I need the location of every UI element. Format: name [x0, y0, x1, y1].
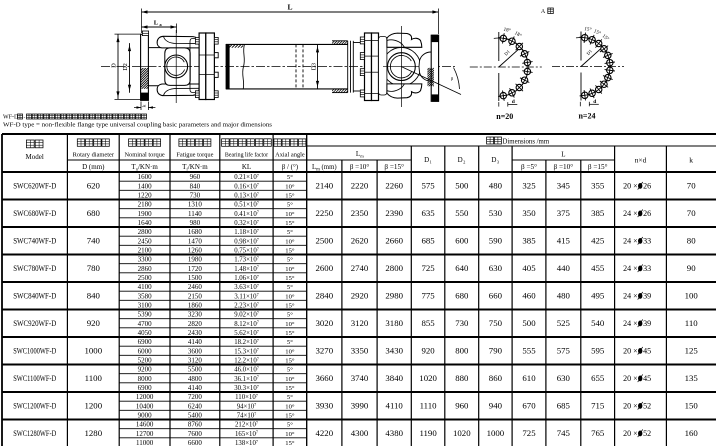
svg-text:575: 575	[421, 181, 435, 191]
svg-text:D: D	[424, 156, 429, 164]
svg-text:SWC1000WF-D: SWC1000WF-D	[13, 347, 56, 356]
svg-text:5°: 5°	[287, 174, 293, 181]
svg-text:6000: 6000	[138, 347, 153, 355]
svg-text:24 ×: 24 ×	[623, 292, 638, 301]
svg-text:5°: 5°	[287, 284, 293, 291]
svg-text:70: 70	[687, 181, 696, 191]
svg-text:SWC780WF-D: SWC780WF-D	[13, 264, 56, 273]
svg-text:425: 425	[591, 236, 605, 246]
svg-text:Tn/KN·m: Tn/KN·m	[131, 163, 158, 172]
svg-text:20 ×: 20 ×	[623, 402, 638, 411]
svg-text:8760: 8760	[188, 421, 203, 429]
svg-text:SWC740WF-D: SWC740WF-D	[13, 237, 56, 246]
svg-text:0.32×107: 0.32×107	[234, 219, 259, 227]
svg-text:n=20: n=20	[496, 112, 513, 121]
svg-text:3740: 3740	[351, 373, 369, 383]
svg-text:12700: 12700	[136, 430, 154, 438]
svg-text:500: 500	[522, 318, 536, 328]
svg-text:15°: 15°	[285, 385, 295, 392]
svg-text:715: 715	[591, 401, 605, 411]
svg-text:3120: 3120	[351, 318, 369, 328]
svg-text:480: 480	[489, 181, 503, 191]
svg-text:730: 730	[455, 318, 469, 328]
svg-text:630: 630	[489, 263, 503, 273]
svg-text:855: 855	[421, 318, 435, 328]
svg-text:4140: 4140	[188, 338, 203, 346]
svg-text:Model: Model	[26, 153, 44, 161]
svg-text:2: 2	[463, 160, 465, 165]
svg-text:725: 725	[421, 263, 435, 273]
svg-text:345: 345	[557, 181, 571, 191]
svg-text:1680: 1680	[188, 228, 203, 236]
svg-text:39: 39	[643, 292, 651, 301]
svg-text:10400: 10400	[136, 402, 154, 410]
svg-text:440: 440	[557, 263, 571, 273]
svg-text:26: 26	[643, 182, 651, 191]
svg-text:20 ×: 20 ×	[623, 347, 638, 356]
svg-text:A: A	[541, 9, 546, 15]
svg-text:15°: 15°	[285, 248, 295, 255]
svg-text:530: 530	[489, 208, 503, 218]
svg-text:Rotary diameter: Rotary diameter	[73, 152, 115, 159]
svg-text:138×107: 138×107	[235, 439, 258, 446]
svg-text:685: 685	[557, 401, 571, 411]
svg-text:WF-D type = non-flexible flang: WF-D type = non-flexible flange type uni…	[3, 122, 273, 129]
svg-text:10°: 10°	[285, 431, 295, 438]
svg-text:5°: 5°	[287, 394, 293, 401]
svg-text:920: 920	[421, 346, 435, 356]
svg-text:5390: 5390	[138, 311, 153, 319]
svg-text:2820: 2820	[188, 320, 203, 328]
svg-text:2150: 2150	[188, 292, 203, 300]
svg-text:355: 355	[591, 181, 605, 191]
svg-text:3930: 3930	[316, 401, 334, 411]
svg-text:D: D	[458, 156, 463, 164]
svg-text:165×107: 165×107	[235, 430, 258, 438]
svg-text:405: 405	[522, 263, 536, 273]
svg-text:920: 920	[87, 318, 101, 328]
svg-text:52: 52	[643, 402, 651, 411]
svg-text:5°: 5°	[287, 257, 293, 264]
svg-text:790: 790	[489, 346, 503, 356]
svg-text:575: 575	[557, 346, 571, 356]
svg-text:D (mm): D (mm)	[82, 163, 105, 171]
svg-text:1900: 1900	[138, 210, 153, 218]
svg-text:10°: 10°	[285, 403, 295, 410]
svg-text:160: 160	[685, 428, 699, 438]
svg-text:β =15°: β =15°	[384, 163, 404, 171]
svg-text:1500: 1500	[188, 274, 203, 282]
svg-text:725: 725	[522, 428, 536, 438]
svg-text:2600: 2600	[316, 263, 334, 273]
svg-text:β =10°: β =10°	[350, 163, 370, 171]
svg-text:46.0×107: 46.0×107	[234, 366, 259, 374]
svg-text:36.1×107: 36.1×107	[234, 375, 259, 383]
svg-text:Fatigue torque: Fatigue torque	[176, 152, 213, 159]
svg-text:3300: 3300	[138, 256, 153, 264]
svg-text:70: 70	[687, 208, 696, 218]
svg-text:90: 90	[687, 263, 696, 273]
svg-text:655: 655	[591, 373, 605, 383]
svg-text:12.2×107: 12.2×107	[234, 356, 259, 364]
svg-text:6900: 6900	[138, 338, 153, 346]
svg-text:0.75×107: 0.75×107	[234, 246, 259, 254]
svg-text:780: 780	[87, 263, 101, 273]
svg-text:212×107: 212×107	[235, 421, 258, 429]
svg-text:1200: 1200	[85, 401, 103, 411]
svg-text:5°: 5°	[287, 367, 293, 374]
svg-text:2860: 2860	[138, 265, 153, 273]
svg-text:2220: 2220	[351, 181, 369, 191]
svg-text:110: 110	[685, 318, 698, 328]
svg-text:SWC920WF-D: SWC920WF-D	[13, 319, 56, 328]
svg-text:2980: 2980	[385, 291, 403, 301]
svg-text:9000: 9000	[138, 412, 153, 420]
svg-text:685: 685	[421, 236, 435, 246]
svg-text:2430: 2430	[188, 329, 203, 337]
svg-text:2500: 2500	[316, 236, 334, 246]
svg-text:750: 750	[489, 318, 503, 328]
svg-text:2620: 2620	[351, 236, 369, 246]
svg-text:840: 840	[190, 182, 201, 190]
svg-text:15°: 15°	[285, 440, 295, 446]
svg-text:L: L	[154, 20, 159, 27]
svg-text:14600: 14600	[136, 421, 154, 429]
svg-text:74×107: 74×107	[237, 411, 257, 419]
svg-text:SWC1100WF-D: SWC1100WF-D	[13, 374, 56, 383]
svg-text:600: 600	[455, 236, 469, 246]
svg-text:4100: 4100	[138, 283, 153, 291]
svg-text:3020: 3020	[316, 318, 334, 328]
svg-text:1110: 1110	[420, 401, 438, 411]
svg-text:-: -	[24, 115, 26, 121]
svg-text:150: 150	[685, 401, 699, 411]
svg-text:2140: 2140	[316, 181, 334, 191]
svg-text:0.21×107: 0.21×107	[234, 173, 259, 181]
svg-text:4110: 4110	[386, 401, 404, 411]
svg-text:15°: 15°	[285, 303, 295, 310]
svg-text:1000: 1000	[85, 346, 103, 356]
svg-text:6240: 6240	[188, 402, 203, 410]
svg-text:1190: 1190	[419, 428, 437, 438]
svg-text:1220: 1220	[138, 192, 153, 200]
svg-text:10°: 10°	[285, 183, 295, 190]
svg-text:730: 730	[190, 192, 201, 200]
svg-text:1: 1	[429, 160, 431, 165]
svg-text:745: 745	[557, 428, 571, 438]
svg-text:495: 495	[591, 291, 605, 301]
svg-text:2800: 2800	[385, 263, 403, 273]
svg-text:15°: 15°	[285, 275, 295, 282]
svg-text:680: 680	[87, 208, 101, 218]
svg-text:1600: 1600	[138, 173, 153, 181]
svg-text:5°: 5°	[287, 422, 293, 429]
svg-text:1.06×107: 1.06×107	[234, 274, 259, 282]
svg-text:1260: 1260	[188, 247, 203, 255]
svg-text:4800: 4800	[188, 375, 203, 383]
svg-text:375: 375	[557, 208, 571, 218]
svg-text:670: 670	[522, 401, 536, 411]
svg-text:3430: 3430	[385, 346, 403, 356]
svg-text:10°: 10°	[285, 238, 295, 245]
svg-text:L: L	[287, 3, 292, 12]
svg-text:385: 385	[522, 236, 536, 246]
svg-text:45: 45	[643, 374, 651, 383]
svg-text:15°: 15°	[285, 330, 295, 337]
svg-text:540: 540	[591, 318, 605, 328]
svg-text:15°: 15°	[584, 25, 592, 33]
svg-text:5.62×107: 5.62×107	[234, 329, 259, 337]
svg-text:635: 635	[421, 208, 435, 218]
svg-text:4220: 4220	[316, 428, 334, 438]
svg-text:10°: 10°	[285, 321, 295, 328]
svg-text:k: k	[142, 104, 148, 107]
svg-text:1980: 1980	[188, 256, 203, 264]
svg-text:595: 595	[591, 346, 605, 356]
svg-text:630: 630	[557, 373, 571, 383]
svg-text:1310: 1310	[188, 201, 203, 209]
svg-text:940: 940	[489, 401, 503, 411]
svg-text:33: 33	[643, 264, 651, 273]
svg-text:2800: 2800	[138, 228, 153, 236]
svg-text:Nominal torque: Nominal torque	[124, 152, 164, 159]
svg-text:980: 980	[190, 219, 201, 227]
svg-text:740: 740	[87, 236, 101, 246]
svg-text:26: 26	[643, 209, 651, 218]
svg-text:1.18×107: 1.18×107	[234, 228, 259, 236]
svg-text:5°: 5°	[287, 229, 293, 236]
svg-text:9.02×107: 9.02×107	[234, 311, 259, 319]
svg-text:20 ×: 20 ×	[623, 429, 638, 438]
svg-text:10°: 10°	[285, 266, 295, 273]
svg-text:3990: 3990	[351, 401, 369, 411]
svg-text:2350: 2350	[351, 208, 369, 218]
svg-text:1720: 1720	[188, 265, 203, 273]
svg-text:WF-D: WF-D	[3, 115, 19, 121]
svg-text:1020: 1020	[453, 428, 471, 438]
svg-text:800: 800	[455, 346, 469, 356]
svg-text:18.2×107: 18.2×107	[234, 338, 259, 346]
svg-text:8000: 8000	[138, 375, 153, 383]
svg-text:D3: D3	[312, 63, 318, 70]
svg-text:15.3×107: 15.3×107	[234, 347, 259, 355]
svg-text:m: m	[360, 154, 364, 159]
svg-text:SWC1280WF-D: SWC1280WF-D	[13, 429, 56, 438]
svg-text:7200: 7200	[188, 393, 203, 401]
svg-text:n=24: n=24	[578, 112, 595, 121]
svg-text:3180: 3180	[385, 318, 403, 328]
svg-text:2500: 2500	[138, 274, 153, 282]
svg-text:5200: 5200	[138, 357, 153, 365]
svg-text:860: 860	[489, 373, 503, 383]
svg-text:20 ×: 20 ×	[623, 182, 638, 191]
svg-text:3.63×107: 3.63×107	[234, 283, 259, 291]
svg-text:β / (°): β / (°)	[282, 163, 299, 171]
svg-text:24 ×: 24 ×	[623, 209, 638, 218]
svg-text:β =5°: β =5°	[521, 163, 537, 171]
svg-text:1140: 1140	[188, 210, 202, 218]
svg-text:3350: 3350	[351, 346, 369, 356]
svg-text:24 ×: 24 ×	[623, 237, 638, 246]
svg-text:4140: 4140	[188, 384, 203, 392]
svg-text:5°: 5°	[287, 339, 293, 346]
svg-text:9200: 9200	[138, 366, 153, 374]
svg-text:SWC620WF-D: SWC620WF-D	[13, 182, 56, 191]
svg-text:7600: 7600	[188, 430, 203, 438]
svg-text:3600: 3600	[188, 347, 203, 355]
svg-text:5500: 5500	[188, 366, 203, 374]
svg-text:15°: 15°	[285, 358, 295, 365]
svg-text:L: L	[561, 151, 565, 159]
svg-text:45: 45	[643, 347, 651, 356]
svg-text:24 ×: 24 ×	[623, 264, 638, 273]
svg-text:SWC680WF-D: SWC680WF-D	[13, 209, 56, 218]
svg-text:1400: 1400	[138, 182, 153, 190]
svg-text:0.98×107: 0.98×107	[234, 237, 259, 245]
svg-text:15°: 15°	[285, 413, 295, 420]
svg-text:52: 52	[643, 429, 651, 438]
svg-text:10°: 10°	[285, 348, 295, 355]
svg-text:2840: 2840	[316, 291, 334, 301]
svg-text:135: 135	[685, 373, 699, 383]
svg-text:4380: 4380	[385, 428, 403, 438]
svg-text:SWC840WF-D: SWC840WF-D	[13, 292, 56, 301]
svg-text:350: 350	[522, 208, 536, 218]
svg-text:10°: 10°	[285, 376, 295, 383]
svg-text:2460: 2460	[188, 283, 203, 291]
svg-text:460: 460	[522, 291, 536, 301]
svg-text:1470: 1470	[188, 237, 203, 245]
svg-text:20 ×: 20 ×	[623, 374, 638, 383]
svg-text:3840: 3840	[385, 373, 403, 383]
svg-text:4300: 4300	[351, 428, 369, 438]
svg-text:D: D	[111, 63, 118, 68]
svg-text:Axial angle: Axial angle	[275, 152, 305, 159]
svg-text:3580: 3580	[138, 292, 153, 300]
svg-text:2250: 2250	[316, 208, 334, 218]
svg-text:1.48×107: 1.48×107	[234, 265, 259, 273]
svg-text:660: 660	[489, 291, 503, 301]
svg-text:1000: 1000	[487, 428, 505, 438]
svg-text:1640: 1640	[138, 219, 153, 227]
svg-text:2740: 2740	[351, 263, 369, 273]
svg-text:1020: 1020	[419, 373, 437, 383]
svg-text:33: 33	[643, 237, 651, 246]
svg-text:385: 385	[591, 208, 605, 218]
svg-text:110×107: 110×107	[235, 393, 258, 401]
svg-text:d: d	[512, 99, 515, 105]
svg-text:325: 325	[522, 181, 536, 191]
svg-text:n×d: n×d	[635, 156, 647, 165]
svg-text:2450: 2450	[138, 237, 153, 245]
svg-text:10°: 10°	[285, 211, 295, 218]
svg-text:3120: 3120	[188, 357, 203, 365]
svg-text:D2: D2	[123, 63, 129, 70]
svg-text:455: 455	[591, 263, 605, 273]
svg-text:5°: 5°	[287, 312, 293, 319]
svg-text:775: 775	[421, 291, 435, 301]
svg-text:500: 500	[455, 181, 469, 191]
svg-text:480: 480	[557, 291, 571, 301]
svg-text:0.16×107: 0.16×107	[234, 182, 259, 190]
svg-text:KL: KL	[242, 163, 251, 171]
svg-text:24 ×: 24 ×	[623, 319, 638, 328]
svg-text:80: 80	[687, 236, 696, 246]
svg-text:640: 640	[455, 263, 469, 273]
svg-text:880: 880	[455, 373, 469, 383]
svg-text:4700: 4700	[138, 320, 153, 328]
svg-text:β =10°: β =10°	[554, 163, 574, 171]
svg-text:Tf/KN·m: Tf/KN·m	[182, 163, 208, 172]
svg-text:1280: 1280	[85, 428, 103, 438]
svg-text:3660: 3660	[316, 373, 334, 383]
svg-text:2660: 2660	[385, 236, 403, 246]
svg-text:680: 680	[455, 291, 469, 301]
svg-text:3270: 3270	[316, 346, 334, 356]
svg-text:2.23×107: 2.23×107	[234, 301, 259, 309]
svg-text:SWC1200WF-D: SWC1200WF-D	[13, 402, 56, 411]
svg-text:0.51×107: 0.51×107	[234, 201, 259, 209]
svg-text:765: 765	[591, 428, 605, 438]
svg-text:k: k	[689, 156, 693, 165]
svg-text:525: 525	[557, 318, 571, 328]
svg-text:1.73×107: 1.73×107	[234, 256, 259, 264]
svg-text:3.11×107: 3.11×107	[234, 292, 258, 300]
svg-text:0.13×107: 0.13×107	[234, 191, 259, 199]
svg-text:555: 555	[522, 346, 536, 356]
svg-text:590: 590	[489, 236, 503, 246]
svg-text:2180: 2180	[138, 201, 153, 209]
svg-text:5°: 5°	[287, 202, 293, 209]
svg-text:15°: 15°	[285, 193, 295, 200]
svg-text:960: 960	[455, 401, 469, 411]
svg-text:1860: 1860	[188, 302, 203, 310]
svg-text:620: 620	[87, 181, 101, 191]
svg-text:4050: 4050	[138, 329, 153, 337]
svg-text:Dimensions /mm: Dimensions /mm	[503, 139, 550, 146]
svg-text:960: 960	[190, 173, 201, 181]
svg-text:3230: 3230	[188, 311, 203, 319]
svg-text:100: 100	[685, 291, 699, 301]
svg-text:2260: 2260	[385, 181, 403, 191]
svg-text:415: 415	[557, 236, 571, 246]
svg-text:Bearing life factor: Bearing life factor	[225, 152, 268, 159]
svg-text:15°: 15°	[285, 220, 295, 227]
svg-text:550: 550	[455, 208, 469, 218]
svg-text:2100: 2100	[138, 247, 153, 255]
svg-text:2920: 2920	[351, 291, 369, 301]
svg-text:6600: 6600	[188, 439, 203, 446]
svg-text:d: d	[593, 99, 596, 105]
svg-text:125: 125	[685, 346, 699, 356]
svg-text:94×107: 94×107	[237, 402, 257, 410]
svg-text:β =15°: β =15°	[588, 163, 608, 171]
svg-text:840: 840	[87, 291, 101, 301]
svg-text:2390: 2390	[385, 208, 403, 218]
svg-text:5400: 5400	[188, 412, 203, 420]
svg-text:8.12×107: 8.12×107	[234, 320, 259, 328]
svg-text:1100: 1100	[85, 373, 103, 383]
svg-text:12000: 12000	[136, 393, 154, 401]
svg-text:11000: 11000	[136, 439, 154, 446]
svg-text:39: 39	[643, 319, 651, 328]
svg-text:10°: 10°	[285, 293, 295, 300]
svg-text:0.41×107: 0.41×107	[234, 210, 259, 218]
svg-text:610: 610	[522, 373, 536, 383]
svg-text:3100: 3100	[138, 302, 153, 310]
svg-text:6900: 6900	[138, 384, 153, 392]
svg-text:30.3×107: 30.3×107	[234, 384, 259, 392]
